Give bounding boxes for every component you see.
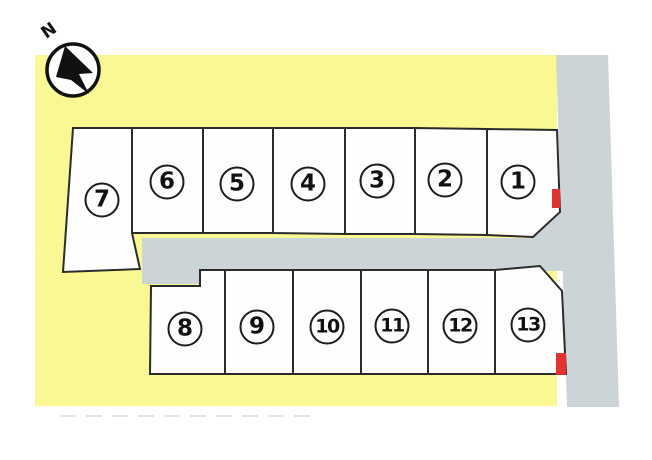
plot-7-number: 7: [85, 183, 120, 218]
plot-5-number: 5: [220, 167, 255, 202]
plot-9-number: 9: [240, 310, 275, 345]
plot-1-number: 1: [501, 165, 536, 200]
bottom-row-plots: [150, 266, 566, 374]
compass: [47, 44, 99, 96]
plot-8-number: 8: [168, 312, 203, 347]
red-marker-plot-13: [556, 353, 566, 375]
plot-4-number: 4: [291, 167, 326, 202]
plot-13-number: 13: [511, 308, 546, 343]
site-plan-drawing: [0, 0, 652, 460]
plot-3-number: 3: [360, 164, 395, 199]
plot-10-number: 10: [310, 310, 345, 345]
plot-11-number: 11: [375, 309, 410, 344]
plot-6-number: 6: [150, 165, 185, 200]
plot-12-number: 12: [443, 309, 478, 344]
red-marker-plot-1: [552, 189, 560, 208]
plot-2-number: 2: [428, 163, 463, 198]
lot-layout-map: N 1 2 3 4 5 6 7 8 9 10 11 12 13: [0, 0, 652, 460]
